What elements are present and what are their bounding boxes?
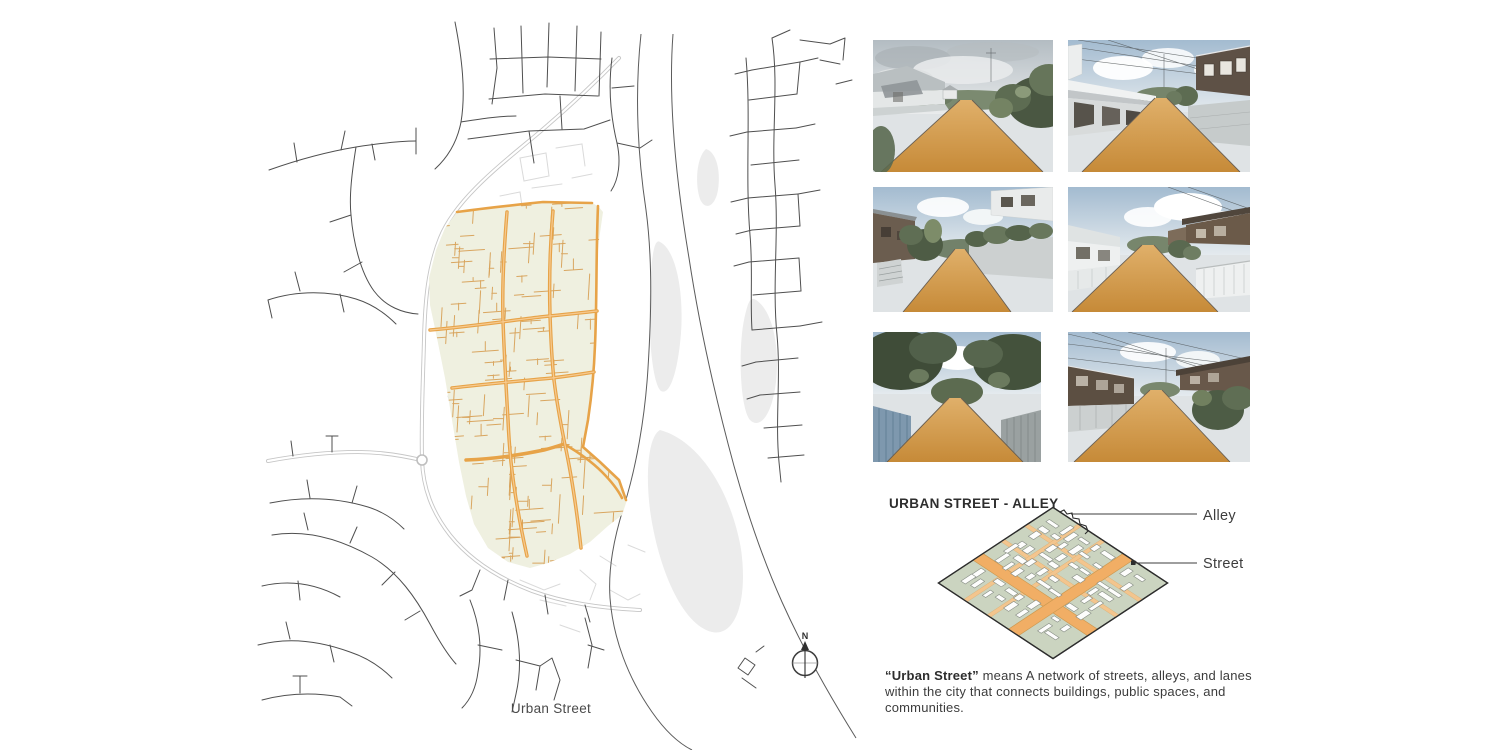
river xyxy=(610,34,856,750)
map-caption: Urban Street xyxy=(451,701,651,716)
north-road-network xyxy=(435,22,652,191)
presentation-board: N Urban Street xyxy=(0,0,1500,750)
alley-definition-term: “Urban Street” xyxy=(885,668,979,683)
river-islands xyxy=(648,149,777,632)
alley-photo-5 xyxy=(873,332,1041,462)
diagram-label-alley: Alley xyxy=(1203,508,1236,524)
diagram-label-street: Street xyxy=(1203,556,1244,572)
alley-photo-4 xyxy=(1068,187,1250,312)
alley-photo-2 xyxy=(1068,40,1250,172)
alley-definition: “Urban Street” means A network of street… xyxy=(885,668,1267,716)
alley-photo-1 xyxy=(873,40,1053,172)
alley-photo-3 xyxy=(873,187,1053,312)
north-compass: N xyxy=(793,631,818,678)
urban-street-alley-diagram xyxy=(900,495,1200,670)
alley-photo-6 xyxy=(1068,332,1250,462)
roundabout xyxy=(417,455,427,465)
compass-north-label: N xyxy=(802,631,809,641)
west-road-network xyxy=(258,128,456,706)
street-leader-dot xyxy=(1131,561,1136,566)
highlight-district xyxy=(428,202,644,588)
urban-street-map: N xyxy=(250,0,860,750)
